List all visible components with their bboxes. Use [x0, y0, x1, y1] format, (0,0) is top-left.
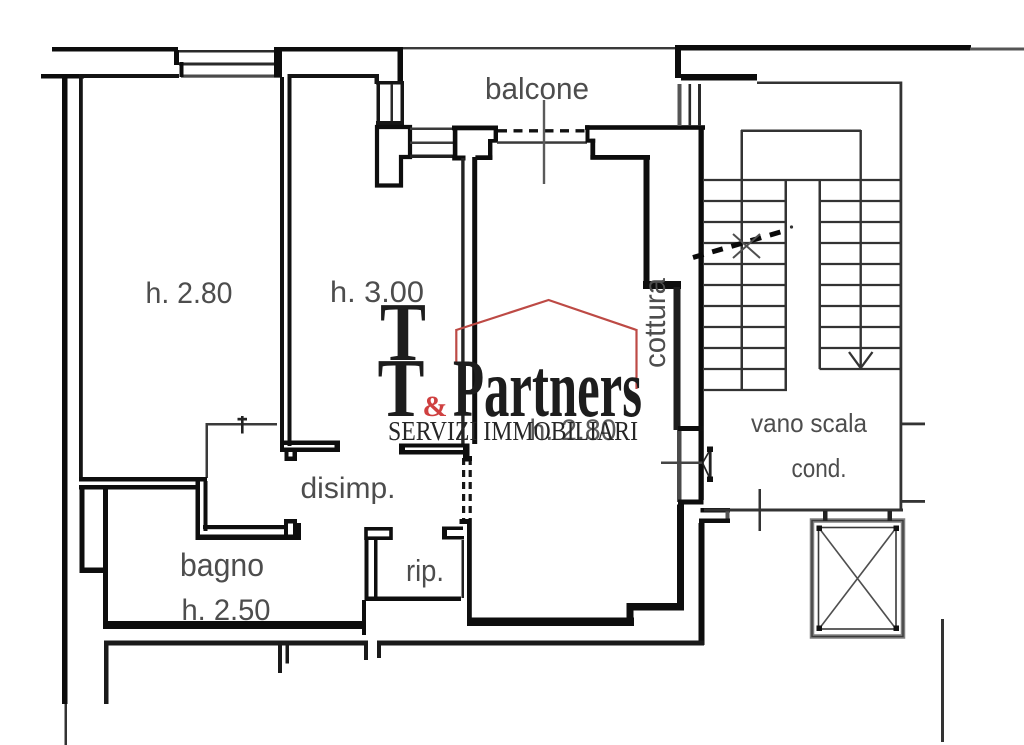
svg-text:h. 2.50: h. 2.50 [182, 594, 271, 627]
svg-text:rip.: rip. [406, 553, 444, 588]
svg-text:SERVIZI IMMOBILIARI: SERVIZI IMMOBILIARI [388, 416, 638, 446]
svg-text:balcone: balcone [485, 71, 589, 106]
svg-text:cottura: cottura [639, 278, 672, 368]
svg-text:vano scala: vano scala [751, 408, 867, 438]
svg-text:h. 2.80: h. 2.80 [146, 277, 233, 310]
svg-text:disimp.: disimp. [301, 472, 396, 505]
svg-text:cond.: cond. [792, 453, 847, 483]
svg-text:bagno: bagno [180, 547, 264, 583]
